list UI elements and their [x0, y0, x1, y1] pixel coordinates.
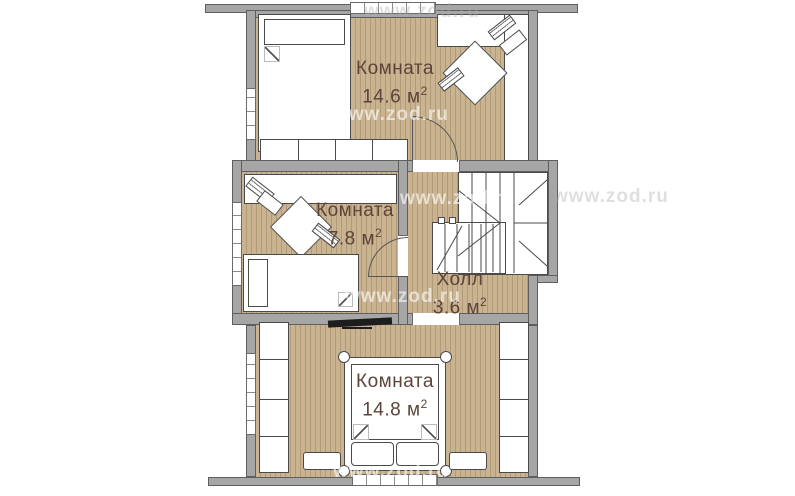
stair-treads [425, 168, 555, 278]
room-label-hall: Холл 3.6 м2 [405, 268, 515, 319]
blanket-fold [338, 292, 353, 307]
shelf-divider [260, 359, 288, 360]
wall-room-top-east [528, 10, 538, 168]
wall-hall-east [528, 275, 538, 325]
wall-room-bottom-east [528, 325, 538, 477]
shelf-divider [500, 436, 528, 437]
room-area: 14.8 м2 [315, 393, 475, 421]
window-middle-west [232, 202, 242, 286]
shelf-divider [260, 436, 288, 437]
tv-stand [342, 327, 372, 329]
room-label-bottom: Комната 14.8 м2 [315, 370, 475, 421]
shelf-divider [500, 399, 528, 400]
room-name: Комната [315, 370, 475, 393]
room-label-top: Комната 14.6 м2 [315, 57, 475, 108]
room-name: Комната [315, 57, 475, 80]
wardrobe-right [499, 322, 529, 473]
pillow [351, 442, 394, 466]
floor-plan: Комната 14.6 м2 Комната 7.8 м2 [0, 0, 795, 496]
window-bottom [352, 474, 438, 486]
blanket-fold [421, 424, 437, 440]
pillow [396, 442, 439, 466]
window-room-top-west [246, 88, 256, 140]
wardrobe-left [259, 322, 289, 473]
blanket-fold [264, 46, 280, 62]
shelf-divider [500, 359, 528, 360]
window-top [350, 2, 436, 14]
room-area: 14.6 м2 [315, 80, 475, 108]
room-name: Комната [280, 199, 430, 222]
room-name: Холл [405, 268, 515, 291]
nightstand-left [303, 452, 341, 470]
blanket-fold [353, 424, 369, 440]
bed-post [338, 351, 350, 363]
pillow [264, 19, 345, 45]
watermark: www.zod.ru [553, 186, 669, 208]
nightstand-right [449, 452, 487, 470]
pillow [248, 259, 268, 307]
bed-post [440, 351, 452, 363]
room-area: 3.6 м2 [405, 291, 515, 319]
shelf-divider [260, 399, 288, 400]
window-room-bottom-west [246, 353, 256, 435]
